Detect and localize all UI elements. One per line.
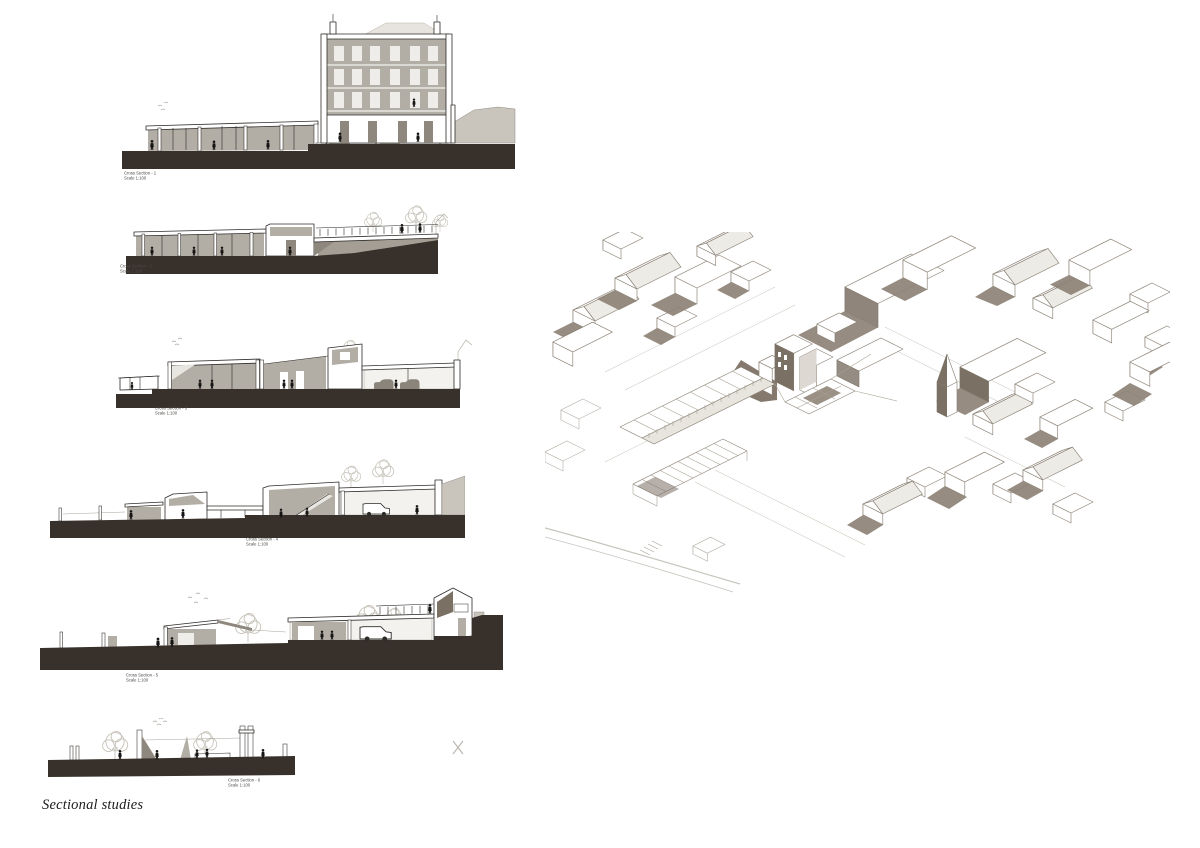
x-mark bbox=[448, 738, 468, 758]
s3-clerestory-tower bbox=[328, 344, 362, 389]
s5-left-posts bbox=[60, 632, 117, 648]
section-6-label: Cross Section - 6 Scale 1:100 bbox=[228, 778, 260, 788]
s3-mid-volume bbox=[260, 356, 328, 389]
s4-main-volume bbox=[263, 482, 339, 519]
section-3-label: Cross Section - 3 Scale 1:100 bbox=[155, 406, 187, 416]
section-1-scale: Scale 1:100 bbox=[124, 176, 156, 181]
section-4-scale: Scale 1:100 bbox=[246, 542, 278, 547]
s4-mid-piece bbox=[165, 492, 207, 520]
s4-garage bbox=[339, 480, 442, 515]
cross-section-1-drawing bbox=[118, 10, 518, 190]
s3-gallery bbox=[168, 359, 260, 389]
s1-left-pavilion bbox=[146, 121, 318, 151]
drawing-sheet: Cross Section - 1 Scale 1:100 Cross Sect… bbox=[0, 0, 1200, 848]
section-2-scale: Scale 1:100 bbox=[120, 269, 152, 274]
s5-tower bbox=[434, 588, 472, 640]
s3-left-shed bbox=[118, 376, 160, 390]
section-2-label: Cross Section - 2 Scale 1:100 bbox=[120, 264, 152, 274]
section-1-label: Cross Section - 1 Scale 1:100 bbox=[124, 171, 156, 181]
axon-bottom-right-scatter bbox=[847, 447, 1093, 535]
section-6-scale: Scale 1:100 bbox=[228, 783, 260, 788]
axon-top-center-cluster bbox=[651, 232, 771, 316]
axonometric-site-drawing bbox=[545, 232, 1170, 612]
s6-ground bbox=[48, 756, 295, 777]
section-4-label: Cross Section - 4 Scale 1:100 bbox=[246, 537, 278, 547]
s4-right-mass bbox=[442, 476, 465, 515]
s1-right-mass bbox=[451, 105, 515, 143]
church-tower bbox=[937, 354, 957, 417]
sheet-caption: Sectional studies bbox=[42, 797, 143, 814]
section-3-scale: Scale 1:100 bbox=[155, 411, 187, 416]
s2-trees bbox=[364, 206, 448, 234]
cross-section-3-drawing bbox=[112, 332, 472, 412]
section-5-label: Cross Section - 5 Scale 1:100 bbox=[126, 673, 158, 683]
s2-left-pavilion bbox=[134, 229, 266, 256]
cross-section-4-drawing bbox=[45, 458, 465, 546]
axon-project-cluster bbox=[620, 335, 903, 506]
s6-walls-and-posts bbox=[70, 726, 287, 760]
cross-section-5-drawing bbox=[38, 578, 508, 678]
cross-section-6-drawing bbox=[45, 718, 305, 788]
axon-right-cluster bbox=[936, 338, 1170, 448]
cross-section-2-drawing bbox=[118, 196, 448, 276]
axon-top-center-right-complex bbox=[798, 236, 976, 352]
section-5-scale: Scale 1:100 bbox=[126, 678, 158, 683]
s4-ground bbox=[50, 515, 465, 538]
